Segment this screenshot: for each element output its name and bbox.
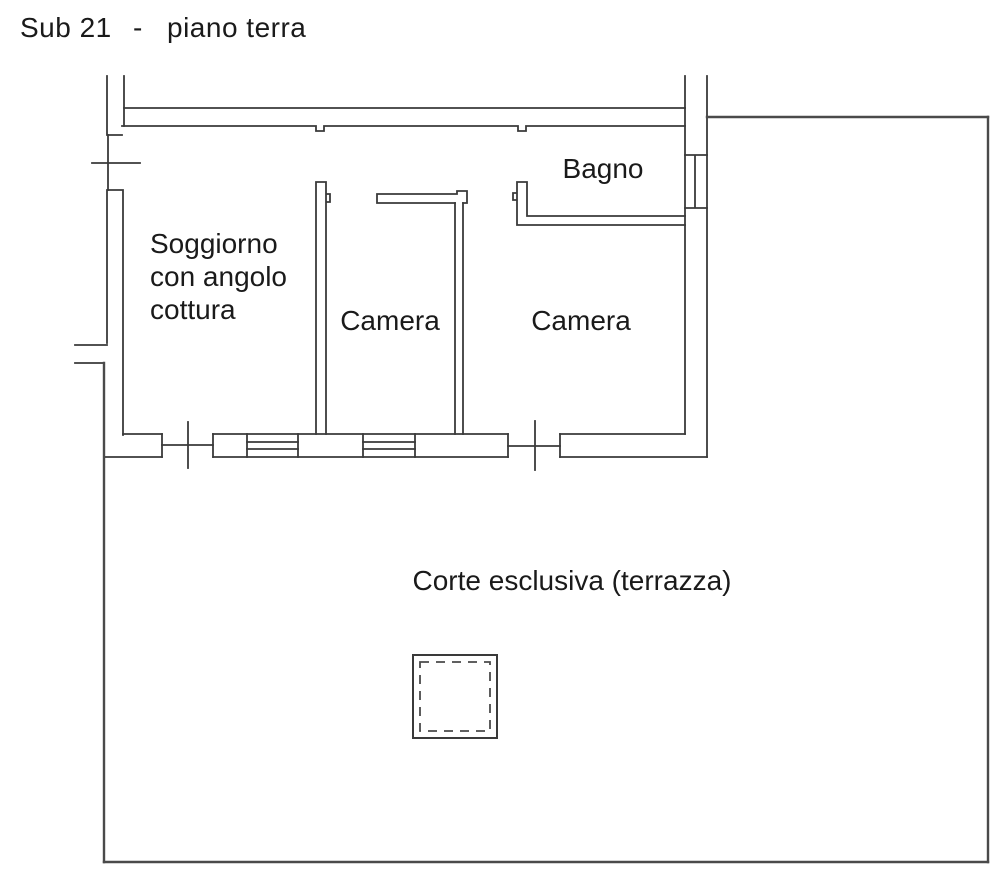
pillar-outline [413, 655, 497, 738]
title-floor: piano terra [167, 12, 306, 43]
room-label-soggiorno-line1: Soggiorno [150, 228, 278, 259]
bagno-window-symbol [685, 155, 707, 208]
room-labels: Soggiorno con angolo cottura Camera Came… [150, 153, 731, 596]
room-label-bagno: Bagno [563, 153, 644, 184]
room-label-camera-2: Camera [531, 305, 631, 336]
title-subunit: Sub 21 [20, 12, 112, 43]
top-wall-inner-line [122, 126, 685, 131]
window-symbol-1 [247, 442, 298, 449]
title-separator: - [133, 12, 143, 43]
bottom-wall [104, 421, 707, 470]
wall-stub-left [75, 345, 107, 363]
camera1-top-wall [377, 191, 467, 203]
left-wall [107, 190, 123, 435]
floor-plan-page: Sub 21 - piano terra [0, 0, 1000, 880]
partition-camera1-camera2 [455, 203, 463, 434]
bagno-walls [513, 182, 685, 225]
wall-stub-top-right [685, 76, 707, 117]
room-label-camera-1: Camera [340, 305, 440, 336]
window-symbol-2 [363, 442, 415, 449]
bottom-wall-caps [162, 434, 560, 457]
partition-soggiorno-camera1 [316, 182, 330, 434]
room-label-corte: Corte esclusiva (terrazza) [413, 565, 732, 596]
window-frame [685, 155, 707, 208]
drawing-title: Sub 21 - piano terra [20, 12, 306, 43]
pillar-symbol [413, 655, 497, 738]
right-wall [685, 108, 707, 457]
floor-plan-canvas: Sub 21 - piano terra [0, 0, 1000, 880]
entry-door-symbol [92, 135, 140, 190]
room-label-soggiorno-line3: cottura [150, 294, 236, 325]
room-label-soggiorno-line2: con angolo [150, 261, 287, 292]
pillar-dashed-outline [420, 662, 490, 731]
